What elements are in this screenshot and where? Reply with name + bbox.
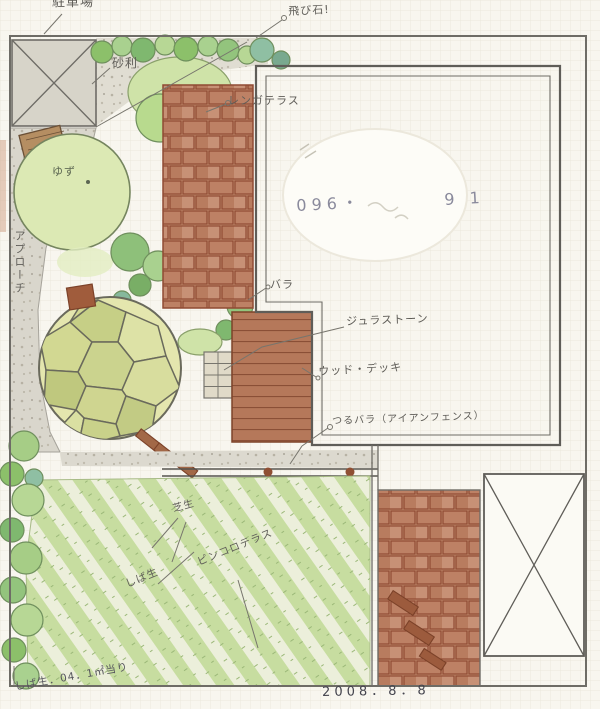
label-approach-path: アプローチ	[14, 230, 25, 295]
brick-terrace	[163, 85, 253, 308]
wood-deck	[232, 312, 312, 442]
plan-date: 2008．8．8	[322, 684, 430, 699]
label-stepping-stones: 飛び石!	[288, 4, 330, 17]
left-edge-smudge	[0, 140, 6, 232]
label-yuzu-tree: ゆず	[52, 166, 76, 177]
label-parking: 駐車場	[52, 0, 94, 9]
plan-artwork	[0, 0, 600, 709]
rose-bloom	[346, 468, 355, 477]
garden-plan-drawing: 駐車場 飛び石! 砂利 レンガテラス バラ ジュラストーン ウッド・デッキ つる…	[0, 0, 600, 709]
label-rose: バラ	[270, 279, 294, 290]
phone-number-suffix: 9 1	[444, 190, 485, 208]
rose-bloom	[264, 468, 273, 477]
phone-number-prefix: 096・	[296, 195, 363, 214]
jura-stone-paving	[204, 352, 232, 398]
label-brick-terrace: レンガテラス	[228, 95, 300, 106]
planter-pot	[66, 284, 95, 310]
lawn-area	[26, 476, 370, 686]
label-jura-stone: ジュラストーン	[346, 313, 429, 327]
label-gravel: 砂利	[112, 57, 138, 69]
crossed-box	[484, 474, 584, 656]
